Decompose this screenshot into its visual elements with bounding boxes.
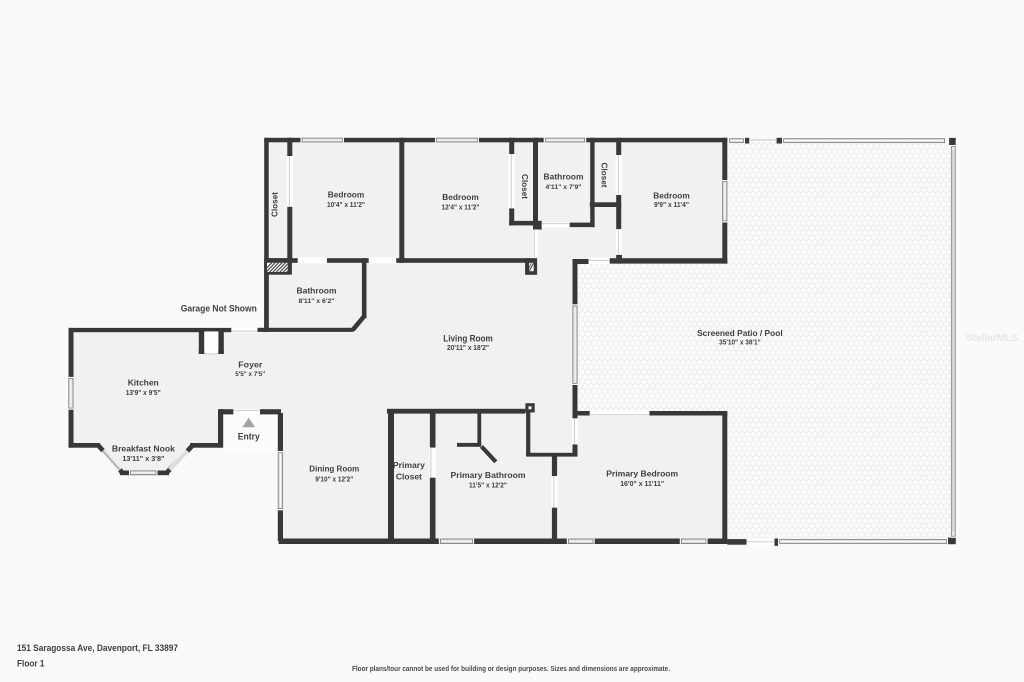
svg-text:8'11" x 6'2": 8'11" x 6'2" [299,298,335,305]
svg-text:Kitchen: Kitchen [128,378,159,388]
svg-text:Bedroom: Bedroom [442,192,479,202]
svg-text:13'11" x 3'8": 13'11" x 3'8" [122,456,164,463]
svg-text:Bathroom: Bathroom [544,172,584,181]
svg-text:Bedroom: Bedroom [328,190,365,200]
svg-text:12'4" x 11'2": 12'4" x 11'2" [442,204,480,211]
svg-text:Closet: Closet [396,472,422,482]
svg-text:Primary: Primary [393,460,425,470]
svg-text:11'5" x 12'2": 11'5" x 12'2" [469,482,507,489]
svg-text:Bedroom: Bedroom [653,190,690,200]
svg-text:StellarMLS: StellarMLS [966,333,1018,344]
svg-text:16'0" x 11'11": 16'0" x 11'11" [620,481,664,488]
svg-text:Primary Bedroom: Primary Bedroom [606,468,678,478]
svg-text:Entry: Entry [238,432,261,443]
svg-text:Dining Room: Dining Room [309,464,359,474]
svg-text:9'10" x 12'2": 9'10" x 12'2" [315,477,353,484]
svg-text:9'9" x 11'4": 9'9" x 11'4" [654,202,689,209]
svg-text:10'4" x 11'2": 10'4" x 11'2" [327,202,365,209]
svg-text:Floor 1: Floor 1 [17,658,45,668]
svg-text:151 Saragossa Ave, Davenport,: 151 Saragossa Ave, Davenport, FL 33897 [17,643,178,653]
svg-text:Foyer: Foyer [238,360,263,369]
svg-text:Closet: Closet [520,174,529,199]
svg-text:5'5" x 7'5": 5'5" x 7'5" [235,371,265,378]
svg-text:Floor plans/tour cannot be use: Floor plans/tour cannot be used for buil… [352,664,670,673]
svg-text:Garage Not Shown: Garage Not Shown [181,303,257,314]
svg-text:35'10" x 38'1": 35'10" x 38'1" [719,340,761,347]
svg-text:4'11" x 7'9": 4'11" x 7'9" [546,184,582,191]
svg-text:Closet: Closet [599,163,608,188]
svg-text:Primary Bathroom: Primary Bathroom [451,470,526,480]
svg-text:20'11" x 18'2": 20'11" x 18'2" [447,343,489,352]
svg-text:13'9" x 9'5": 13'9" x 9'5" [126,390,161,397]
svg-text:Breakfast Nook: Breakfast Nook [112,443,175,453]
svg-text:Screened Patio / Pool: Screened Patio / Pool [697,328,783,338]
svg-text:Closet: Closet [271,192,280,217]
svg-text:Bathroom: Bathroom [297,287,337,296]
